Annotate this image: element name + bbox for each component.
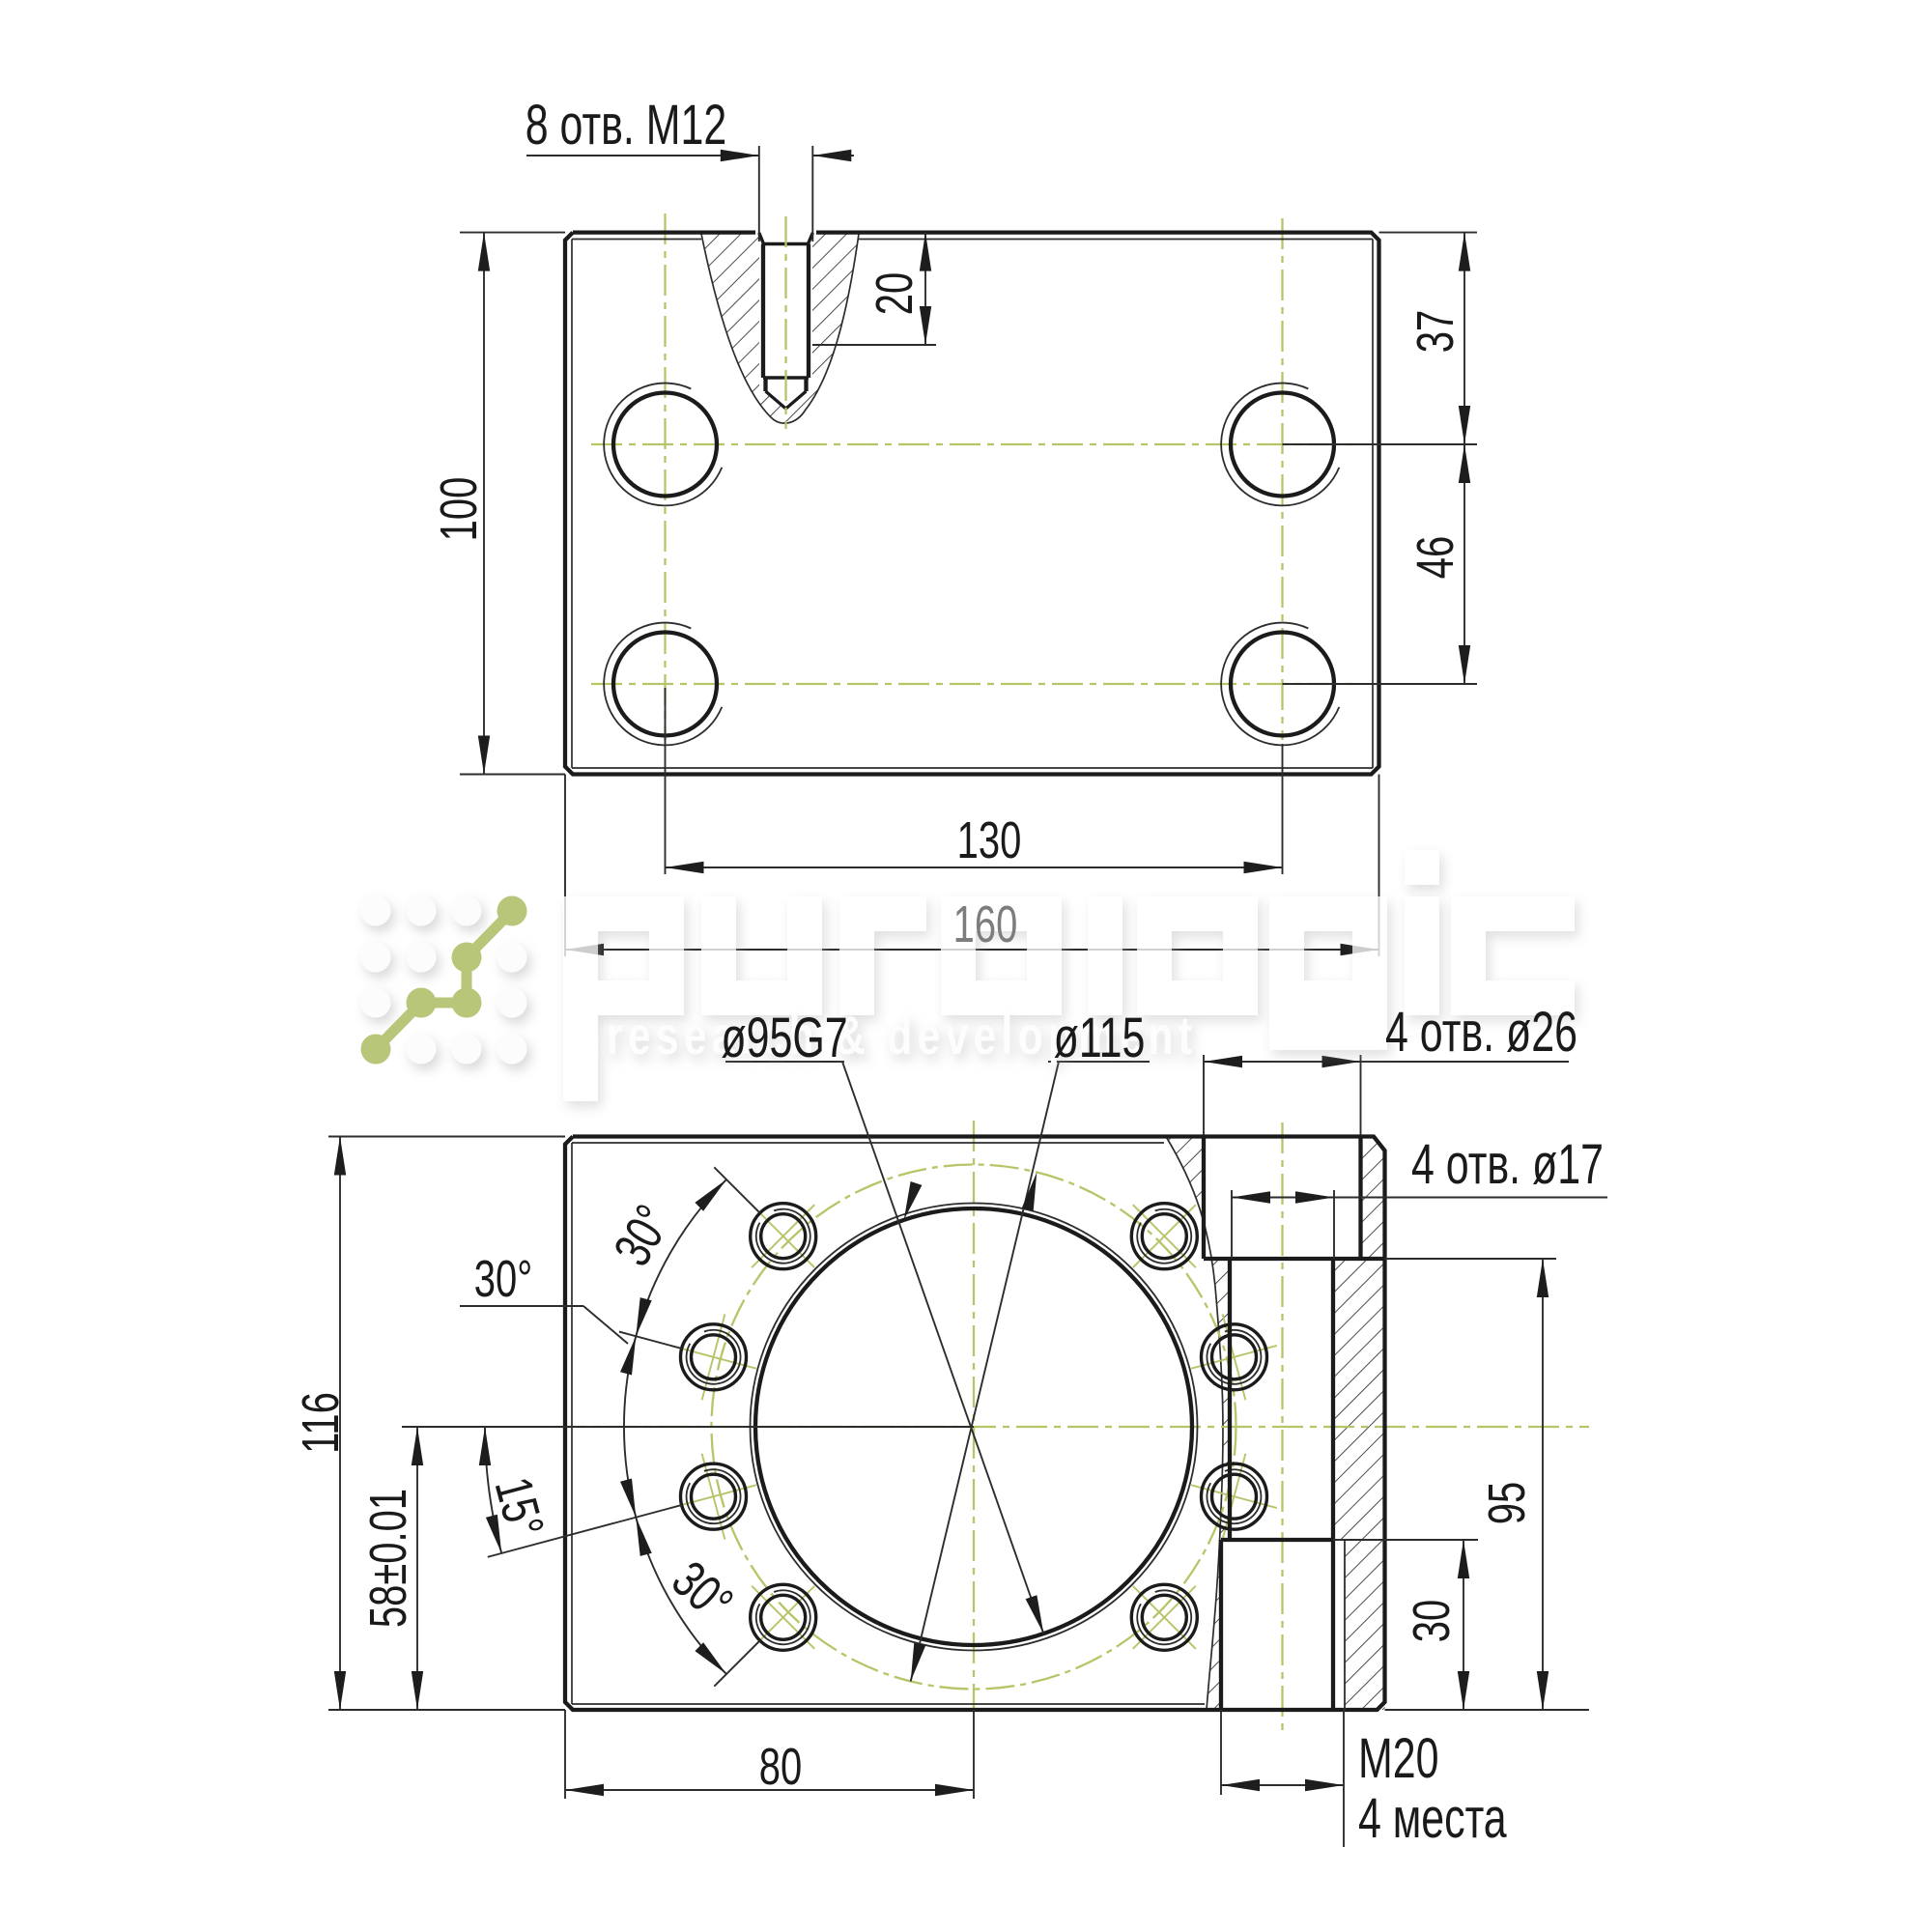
svg-text:80: 80 (759, 1738, 802, 1796)
svg-text:20: 20 (866, 272, 923, 315)
svg-text:37: 37 (1406, 310, 1464, 353)
svg-text:M20: M20 (1358, 1727, 1438, 1790)
svg-text:ø115: ø115 (1054, 1007, 1146, 1069)
svg-text:8 отв. М12: 8 отв. М12 (526, 94, 727, 156)
svg-text:58±0.01: 58±0.01 (359, 1489, 417, 1628)
svg-text:46: 46 (1406, 536, 1464, 579)
svg-text:160: 160 (953, 895, 1018, 953)
svg-text:30°: 30° (474, 1250, 532, 1308)
svg-text:100: 100 (430, 477, 488, 542)
svg-text:4 места: 4 места (1358, 1787, 1507, 1850)
svg-text:4 отв. ø26: 4 отв. ø26 (1385, 1001, 1577, 1064)
svg-text:95: 95 (1478, 1482, 1536, 1524)
svg-text:130: 130 (957, 811, 1022, 869)
svg-text:116: 116 (292, 1392, 350, 1454)
svg-text:30: 30 (1403, 1600, 1461, 1642)
svg-text:ø95G7: ø95G7 (721, 1007, 847, 1069)
svg-text:4 отв. ø17: 4 отв. ø17 (1411, 1133, 1604, 1196)
